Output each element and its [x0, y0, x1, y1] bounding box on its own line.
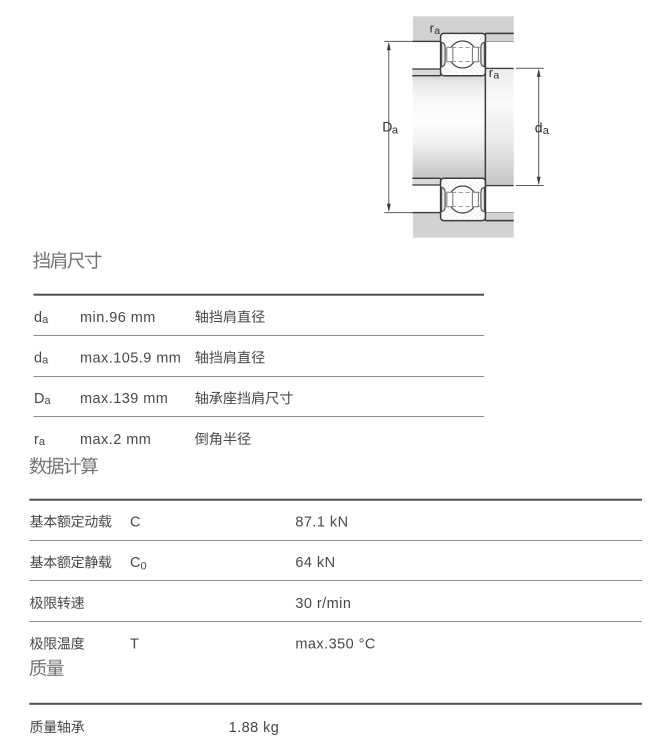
svg-text:a: a	[39, 436, 46, 448]
svg-text:C: C	[130, 515, 141, 531]
svg-text:D: D	[34, 391, 45, 407]
svg-text:a: a	[42, 355, 49, 367]
svg-text:max.350 °C: max.350 °C	[295, 637, 375, 653]
svg-text:max.105.9 mm: max.105.9 mm	[80, 351, 181, 367]
svg-text:1.88 kg: 1.88 kg	[229, 720, 280, 736]
svg-text:a: a	[392, 124, 399, 136]
svg-text:a: a	[45, 395, 52, 407]
svg-text:a: a	[42, 314, 49, 326]
svg-text:max.2 mm: max.2 mm	[80, 432, 151, 448]
svg-text:64 kN: 64 kN	[295, 555, 335, 571]
svg-text:a: a	[434, 25, 440, 37]
svg-text:max.139 mm: max.139 mm	[80, 391, 168, 407]
svg-text:T: T	[130, 637, 139, 653]
svg-text:0: 0	[141, 561, 148, 573]
svg-text:a: a	[543, 125, 550, 137]
svg-text:30 r/min: 30 r/min	[295, 596, 351, 612]
svg-text:C: C	[130, 555, 141, 571]
svg-text:87.1 kN: 87.1 kN	[295, 515, 348, 531]
svg-text:a: a	[493, 70, 499, 82]
svg-text:min.96 mm: min.96 mm	[80, 310, 156, 326]
